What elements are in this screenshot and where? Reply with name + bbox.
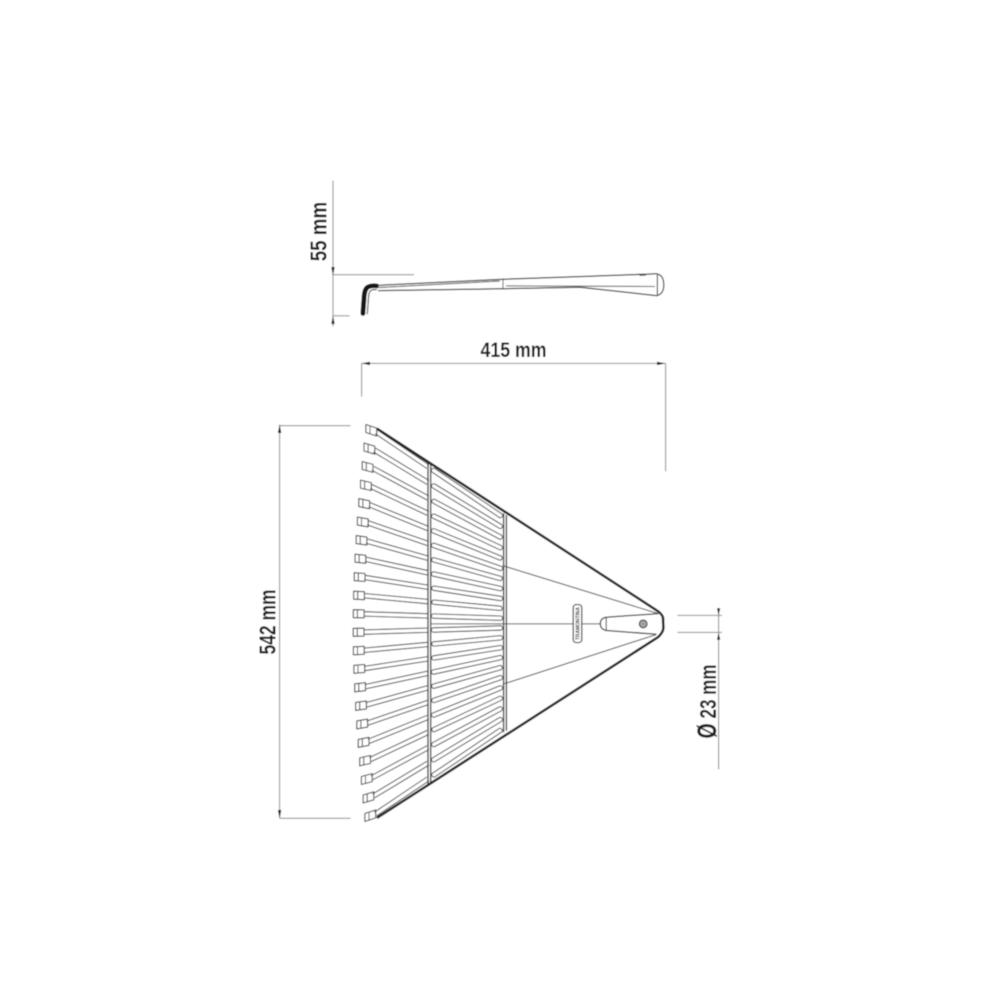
svg-text:542 mm: 542 mm [255, 590, 281, 655]
svg-text:415 mm: 415 mm [481, 338, 547, 362]
svg-text:55 mm: 55 mm [306, 202, 332, 262]
svg-text:TRAMONTINA: TRAMONTINA [576, 606, 582, 640]
svg-text:Ø 23 mm: Ø 23 mm [692, 665, 722, 739]
